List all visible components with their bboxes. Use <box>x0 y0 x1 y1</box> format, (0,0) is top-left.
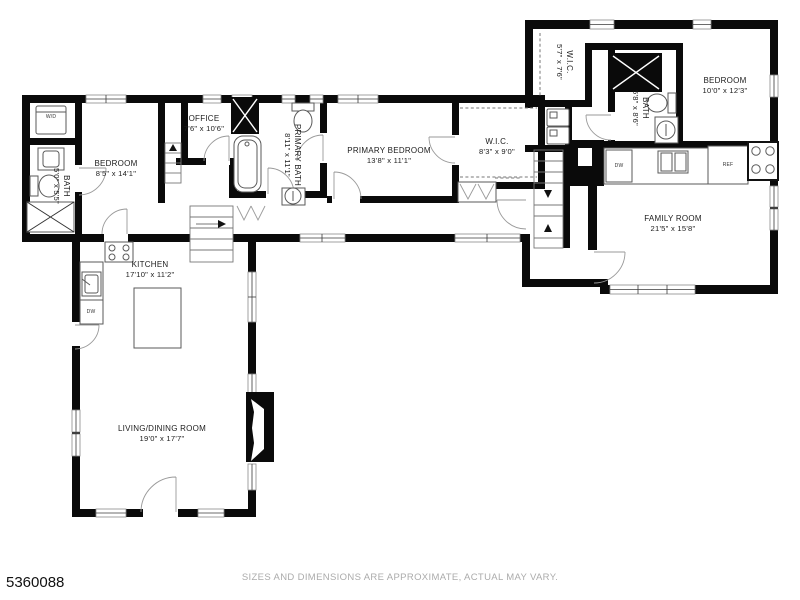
room-label-bath-west: BATH 5'0" x 5'5" <box>51 168 71 204</box>
room-name: W.I.C. <box>564 44 574 80</box>
room-name: BATH <box>61 168 71 204</box>
room-name: BATH <box>640 90 650 126</box>
room-dims: 8'3" x 9'0" <box>479 147 515 157</box>
room-dims: 7'6" x 10'6" <box>184 124 224 134</box>
room-name: W.I.C. <box>479 137 515 147</box>
room-dims: 5'0" x 5'5" <box>51 168 61 204</box>
laundry-west <box>36 106 66 134</box>
room-label-bedroom-west: BEDROOM 8'5" x 14'1" <box>94 159 137 179</box>
dishwasher-label: DW <box>87 309 96 315</box>
room-dims: 5'8" x 8'6" <box>630 90 640 126</box>
room-name: FAMILY ROOM <box>644 214 702 224</box>
room-name: LIVING/DINING ROOM <box>118 424 206 434</box>
floor-plan-image: BEDROOM 8'5" x 14'1" BATH 5'0" x 5'5" OF… <box>0 0 800 600</box>
room-dims: 8'5" x 14'1" <box>94 169 137 179</box>
laundry-upper <box>547 109 569 144</box>
refrigerator-label: REF <box>723 162 734 168</box>
kitchen-fixtures <box>80 242 181 348</box>
room-name: BEDROOM <box>94 159 137 169</box>
chimney <box>570 140 604 186</box>
room-label-primary-bedroom: PRIMARY BEDROOM 13'8" x 11'1" <box>347 146 430 166</box>
room-name: PRIMARY BATH <box>292 124 302 186</box>
room-dims: 8'11" x 11'1" <box>282 124 292 186</box>
stairs-mini <box>165 143 181 183</box>
room-dims: 19'0" x 17'7" <box>118 434 206 444</box>
kitchenette <box>604 142 778 184</box>
room-label-family-room: FAMILY ROOM 21'5" x 15'8" <box>644 214 702 234</box>
washer-dryer-label: W/D <box>46 114 56 120</box>
fireplace <box>246 392 274 462</box>
room-name: OFFICE <box>184 114 224 124</box>
room-name: KITCHEN <box>126 260 175 270</box>
room-label-wic-upper: W.I.C. 5'7" x 7'6" <box>554 44 574 80</box>
room-dims: 5'7" x 7'6" <box>554 44 564 80</box>
dishwasher-label: DW <box>615 163 624 169</box>
stairs-main <box>190 206 233 262</box>
door-openings <box>72 112 615 517</box>
room-name: BEDROOM <box>703 76 748 86</box>
room-dims: 13'8" x 11'1" <box>347 156 430 166</box>
room-name: PRIMARY BEDROOM <box>347 146 430 156</box>
room-label-living-dining: LIVING/DINING ROOM 19'0" x 17'7" <box>118 424 206 444</box>
room-label-bath-upper: BATH 5'8" x 8'6" <box>630 90 650 126</box>
floor-plan-drawing <box>0 0 800 600</box>
room-label-primary-bath: PRIMARY BATH 8'11" x 11'1" <box>282 124 302 186</box>
room-dims: 21'5" x 15'8" <box>644 224 702 234</box>
room-dims: 10'0" x 12'3" <box>703 86 748 96</box>
room-label-bedroom-upper: BEDROOM 10'0" x 12'3" <box>703 76 748 96</box>
room-label-kitchen: KITCHEN 17'10" x 11'2" <box>126 260 175 280</box>
room-dims: 17'10" x 11'2" <box>126 270 175 280</box>
room-label-wic-primary: W.I.C. 8'3" x 9'0" <box>479 137 515 157</box>
room-label-office: OFFICE 7'6" x 10'6" <box>184 114 224 134</box>
disclaimer-text: SIZES AND DIMENSIONS ARE APPROXIMATE, AC… <box>0 572 800 583</box>
